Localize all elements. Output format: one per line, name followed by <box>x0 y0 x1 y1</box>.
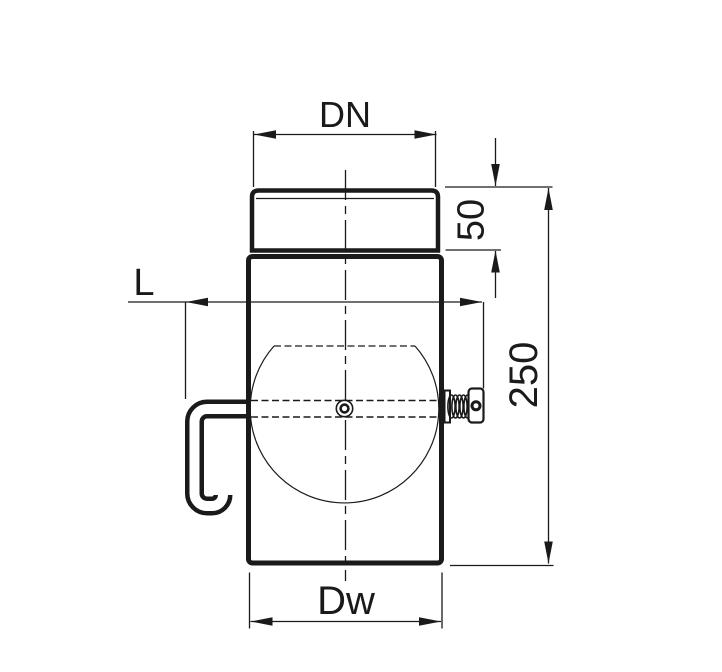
total-length-label: 250 <box>502 342 546 409</box>
handle-rod-outer <box>195 409 251 506</box>
arrowhead-50-down <box>491 164 500 186</box>
collar-height-label: 50 <box>451 199 493 241</box>
operating-handle <box>195 409 251 506</box>
bolt-knob-socket <box>472 402 480 410</box>
locking-bolt-assembly <box>445 389 484 423</box>
lever-length-label: L <box>133 262 154 304</box>
arrowhead-250-up <box>544 188 553 210</box>
dw-label: Dw <box>317 579 375 623</box>
arrowhead-50-up <box>491 251 500 273</box>
damper-hub <box>336 400 352 416</box>
technical-drawing-canvas: DN 50 250 L Dw <box>0 0 722 672</box>
arrowhead-dn-left <box>254 130 276 139</box>
hub-inner-ring <box>341 405 349 413</box>
arrowhead-dn-right <box>415 130 437 139</box>
arrowhead-dw-left <box>251 617 273 626</box>
arrowhead-dw-right <box>419 617 441 626</box>
arrowhead-l-right <box>460 298 482 307</box>
arrowhead-l-left <box>186 298 208 307</box>
flue-damper-drawing: DN 50 250 L Dw <box>0 0 722 672</box>
dn-label: DN <box>319 94 371 135</box>
arrowhead-250-down <box>544 542 553 564</box>
